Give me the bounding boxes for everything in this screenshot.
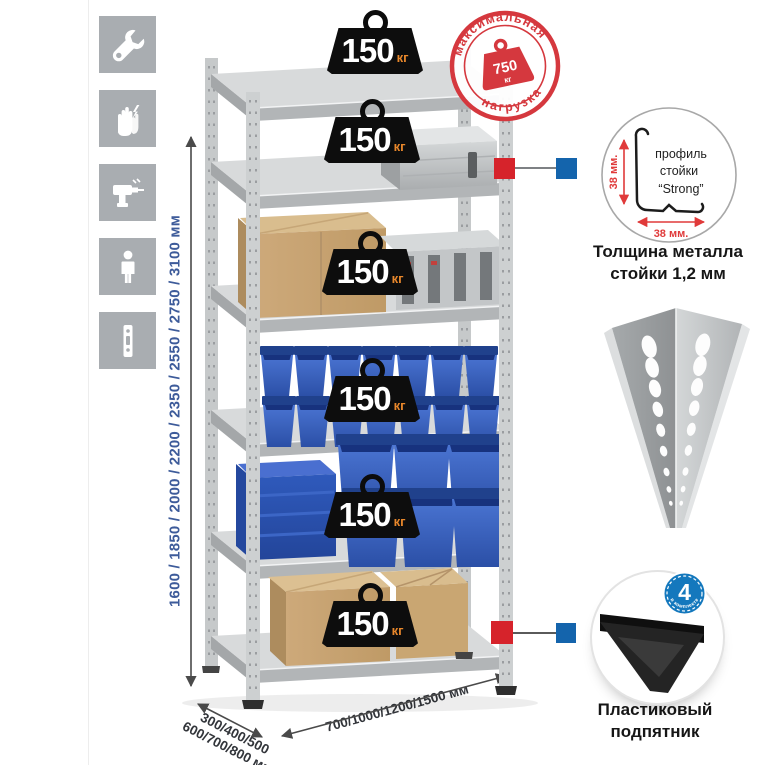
shelf-load-badge: 150кг — [324, 358, 420, 422]
profile-dim-horizontal: 38 мм. — [654, 228, 689, 240]
profile-label-line2: стойки — [660, 164, 698, 178]
floor-shadow — [182, 694, 538, 712]
load-value: 150 — [339, 496, 391, 534]
load-unit: кг — [392, 271, 404, 286]
kit-quantity-value: 4 — [678, 579, 691, 605]
load-value: 150 — [339, 121, 391, 159]
load-value: 150 — [337, 253, 389, 291]
load-value: 150 — [339, 380, 391, 418]
callout-marker-red-bottom — [491, 621, 513, 644]
product-illustration: 1600 / 1850 / 2000 / 2200 / 2350 / 2550 … — [0, 0, 765, 765]
post-profile-detail: 38 мм. 38 мм. профиль стойки “Strong” — [580, 88, 758, 268]
load-unit: кг — [397, 50, 409, 65]
kit-quantity-badge: 4 в комплекте — [662, 571, 707, 616]
callout-marker-blue-bottom — [556, 623, 576, 643]
shelf-load-badge: 150кг — [324, 99, 420, 163]
load-unit: кг — [394, 398, 406, 413]
load-value: 150 — [342, 32, 394, 70]
load-unit: кг — [392, 623, 404, 638]
load-unit: кг — [394, 514, 406, 529]
max-load-stamp: максимальная нагрузка 750 кг — [436, 0, 574, 135]
callout-line-top — [515, 167, 556, 169]
angle-post-image — [596, 302, 756, 537]
shelf-load-badge: 150кг — [324, 474, 420, 538]
profile-label-line1: профиль — [655, 147, 707, 161]
shelf-load-badge: 150кг — [327, 10, 423, 74]
profile-dim-vertical: 38 мм. — [608, 155, 620, 190]
callout-line-bottom — [513, 632, 556, 634]
callout-marker-blue-top — [556, 158, 577, 179]
shelf-load-badge: 150кг — [322, 231, 418, 295]
profile-label-line3: “Strong” — [658, 182, 703, 196]
callout-marker-red-top — [494, 158, 515, 179]
load-value: 150 — [337, 605, 389, 643]
shelf-load-badge: 150кг — [322, 583, 418, 647]
load-unit: кг — [394, 139, 406, 154]
